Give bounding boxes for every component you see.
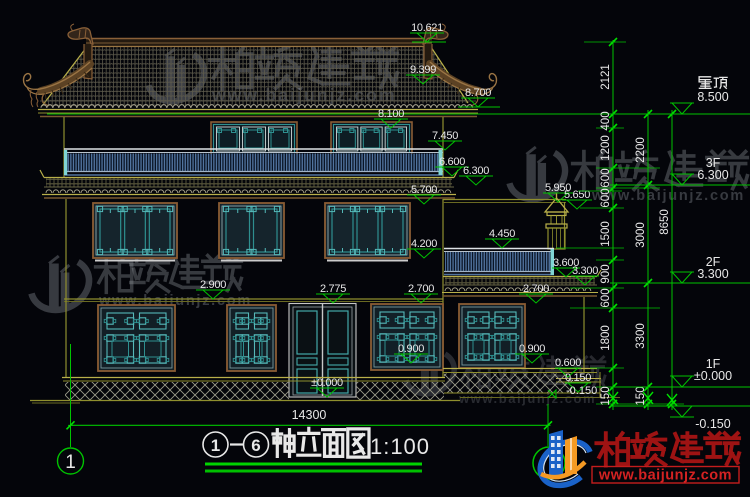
svg-text:2.900: 2.900 [200,279,226,291]
svg-text:0.900: 0.900 [519,343,545,355]
svg-text:1500: 1500 [600,221,612,247]
svg-text:2200: 2200 [635,137,647,163]
svg-text:3.300: 3.300 [697,267,728,281]
svg-text:3.300: 3.300 [572,265,598,277]
svg-text:0.150: 0.150 [565,372,591,384]
svg-text:3300: 3300 [635,323,647,349]
svg-text:1:100: 1:100 [370,434,430,459]
svg-text:150: 150 [635,386,647,405]
svg-text:600: 600 [600,188,612,207]
svg-text:8.700: 8.700 [465,87,491,99]
svg-text:www.baijunjz.com: www.baijunjz.com [598,468,732,484]
svg-text:5.700: 5.700 [411,184,437,196]
svg-text:2.700: 2.700 [523,283,549,295]
svg-text:9.399: 9.399 [410,64,436,76]
svg-text:8650: 8650 [659,209,671,235]
svg-text:7.450: 7.450 [432,130,458,142]
svg-text:-0.150: -0.150 [695,417,730,431]
svg-text:2121: 2121 [600,64,612,90]
svg-text:1800: 1800 [600,325,612,351]
svg-text:14300: 14300 [292,408,327,422]
svg-text:6.300: 6.300 [697,168,728,182]
svg-text:2.775: 2.775 [320,283,346,295]
svg-text:6.300: 6.300 [463,165,489,177]
svg-text:900: 900 [600,264,612,283]
svg-text:3000: 3000 [635,222,647,248]
svg-text:6.600: 6.600 [439,156,465,168]
svg-text:www.baijunjz.com: www.baijunjz.com [591,188,745,204]
svg-text:1: 1 [211,436,220,455]
svg-text:8.500: 8.500 [697,90,728,104]
svg-text:±0.000: ±0.000 [694,369,732,383]
svg-text:0.900: 0.900 [398,343,424,355]
svg-text:6: 6 [251,436,260,455]
svg-text:1200: 1200 [600,135,612,161]
svg-text:2.700: 2.700 [408,283,434,295]
svg-text:±0.000: ±0.000 [311,377,343,389]
svg-text:1: 1 [65,452,76,473]
svg-text:0.600: 0.600 [555,357,581,369]
svg-text:4.450: 4.450 [489,228,515,240]
svg-text:10.621: 10.621 [411,22,443,34]
svg-text:8.100: 8.100 [378,108,404,120]
svg-text:150: 150 [600,386,612,405]
svg-text:600: 600 [600,288,612,307]
svg-text:-0.150: -0.150 [566,385,597,397]
svg-text:4.200: 4.200 [411,238,437,250]
